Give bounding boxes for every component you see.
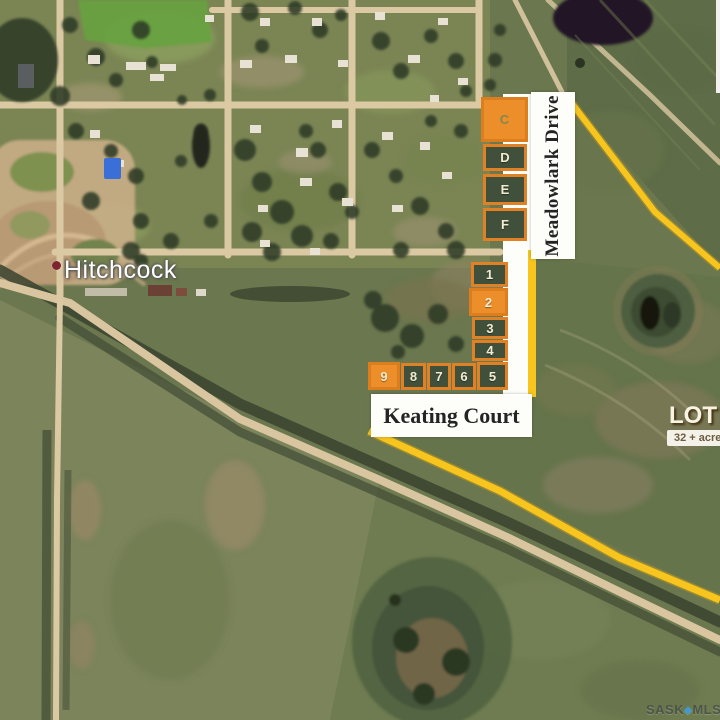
cropped-edge-graphic bbox=[716, 0, 720, 93]
watermark-sask: SASK bbox=[646, 702, 684, 717]
lot-label: C bbox=[500, 112, 509, 127]
parcel-acreage-badge: 32 + acres bbox=[667, 430, 720, 446]
lot-label: 8 bbox=[410, 369, 417, 384]
parcel-title: LOT 1 bbox=[669, 402, 720, 430]
lot-label: 4 bbox=[486, 343, 493, 358]
lot-label: E bbox=[501, 182, 510, 197]
meadowlark-drive-label: Meadowlark Drive bbox=[531, 92, 575, 259]
lot-marker-9: 9 bbox=[368, 362, 400, 390]
lot-marker-d: D bbox=[483, 144, 527, 171]
meadowlark-drive-text: Meadowlark Drive bbox=[542, 95, 564, 257]
lot-marker-8: 8 bbox=[401, 363, 426, 390]
town-marker-dot bbox=[52, 261, 61, 270]
lot-label: 7 bbox=[435, 369, 442, 384]
lot-marker-1: 1 bbox=[471, 262, 508, 287]
slough bbox=[613, 266, 703, 356]
watermark: SASK◆MLS® bbox=[646, 702, 720, 717]
keating-court-label: Keating Court bbox=[371, 394, 532, 437]
lot-label: 2 bbox=[485, 295, 492, 310]
keating-court-text: Keating Court bbox=[383, 403, 519, 429]
mls-satellite-listing-map: C D E F 1 2 3 4 9 8 7 6 5 Meadowlark Dri… bbox=[0, 0, 720, 720]
lot-marker-f: F bbox=[483, 208, 527, 241]
lot-marker-2: 2 bbox=[469, 288, 508, 316]
satellite-map bbox=[0, 0, 720, 720]
lot-marker-4: 4 bbox=[472, 340, 508, 361]
lot-label: 6 bbox=[460, 369, 467, 384]
town-label: Hitchcock bbox=[64, 256, 177, 285]
lot-label: 1 bbox=[486, 267, 493, 282]
lot-label: 3 bbox=[486, 321, 493, 336]
lot-label: 5 bbox=[489, 369, 496, 384]
lot-marker-c: C bbox=[481, 97, 528, 142]
lot-marker-e: E bbox=[483, 174, 527, 205]
lot-label: D bbox=[500, 150, 509, 165]
lot-label: F bbox=[501, 217, 509, 232]
lot-marker-6: 6 bbox=[452, 363, 476, 390]
bush-mound bbox=[352, 557, 512, 720]
lot-marker-3: 3 bbox=[472, 317, 508, 339]
lot-label: 9 bbox=[380, 369, 387, 384]
lot-marker-5: 5 bbox=[477, 362, 508, 390]
lot-marker-7: 7 bbox=[427, 363, 451, 390]
boundary-line-west bbox=[528, 250, 536, 397]
watermark-mls: MLS bbox=[692, 702, 720, 717]
